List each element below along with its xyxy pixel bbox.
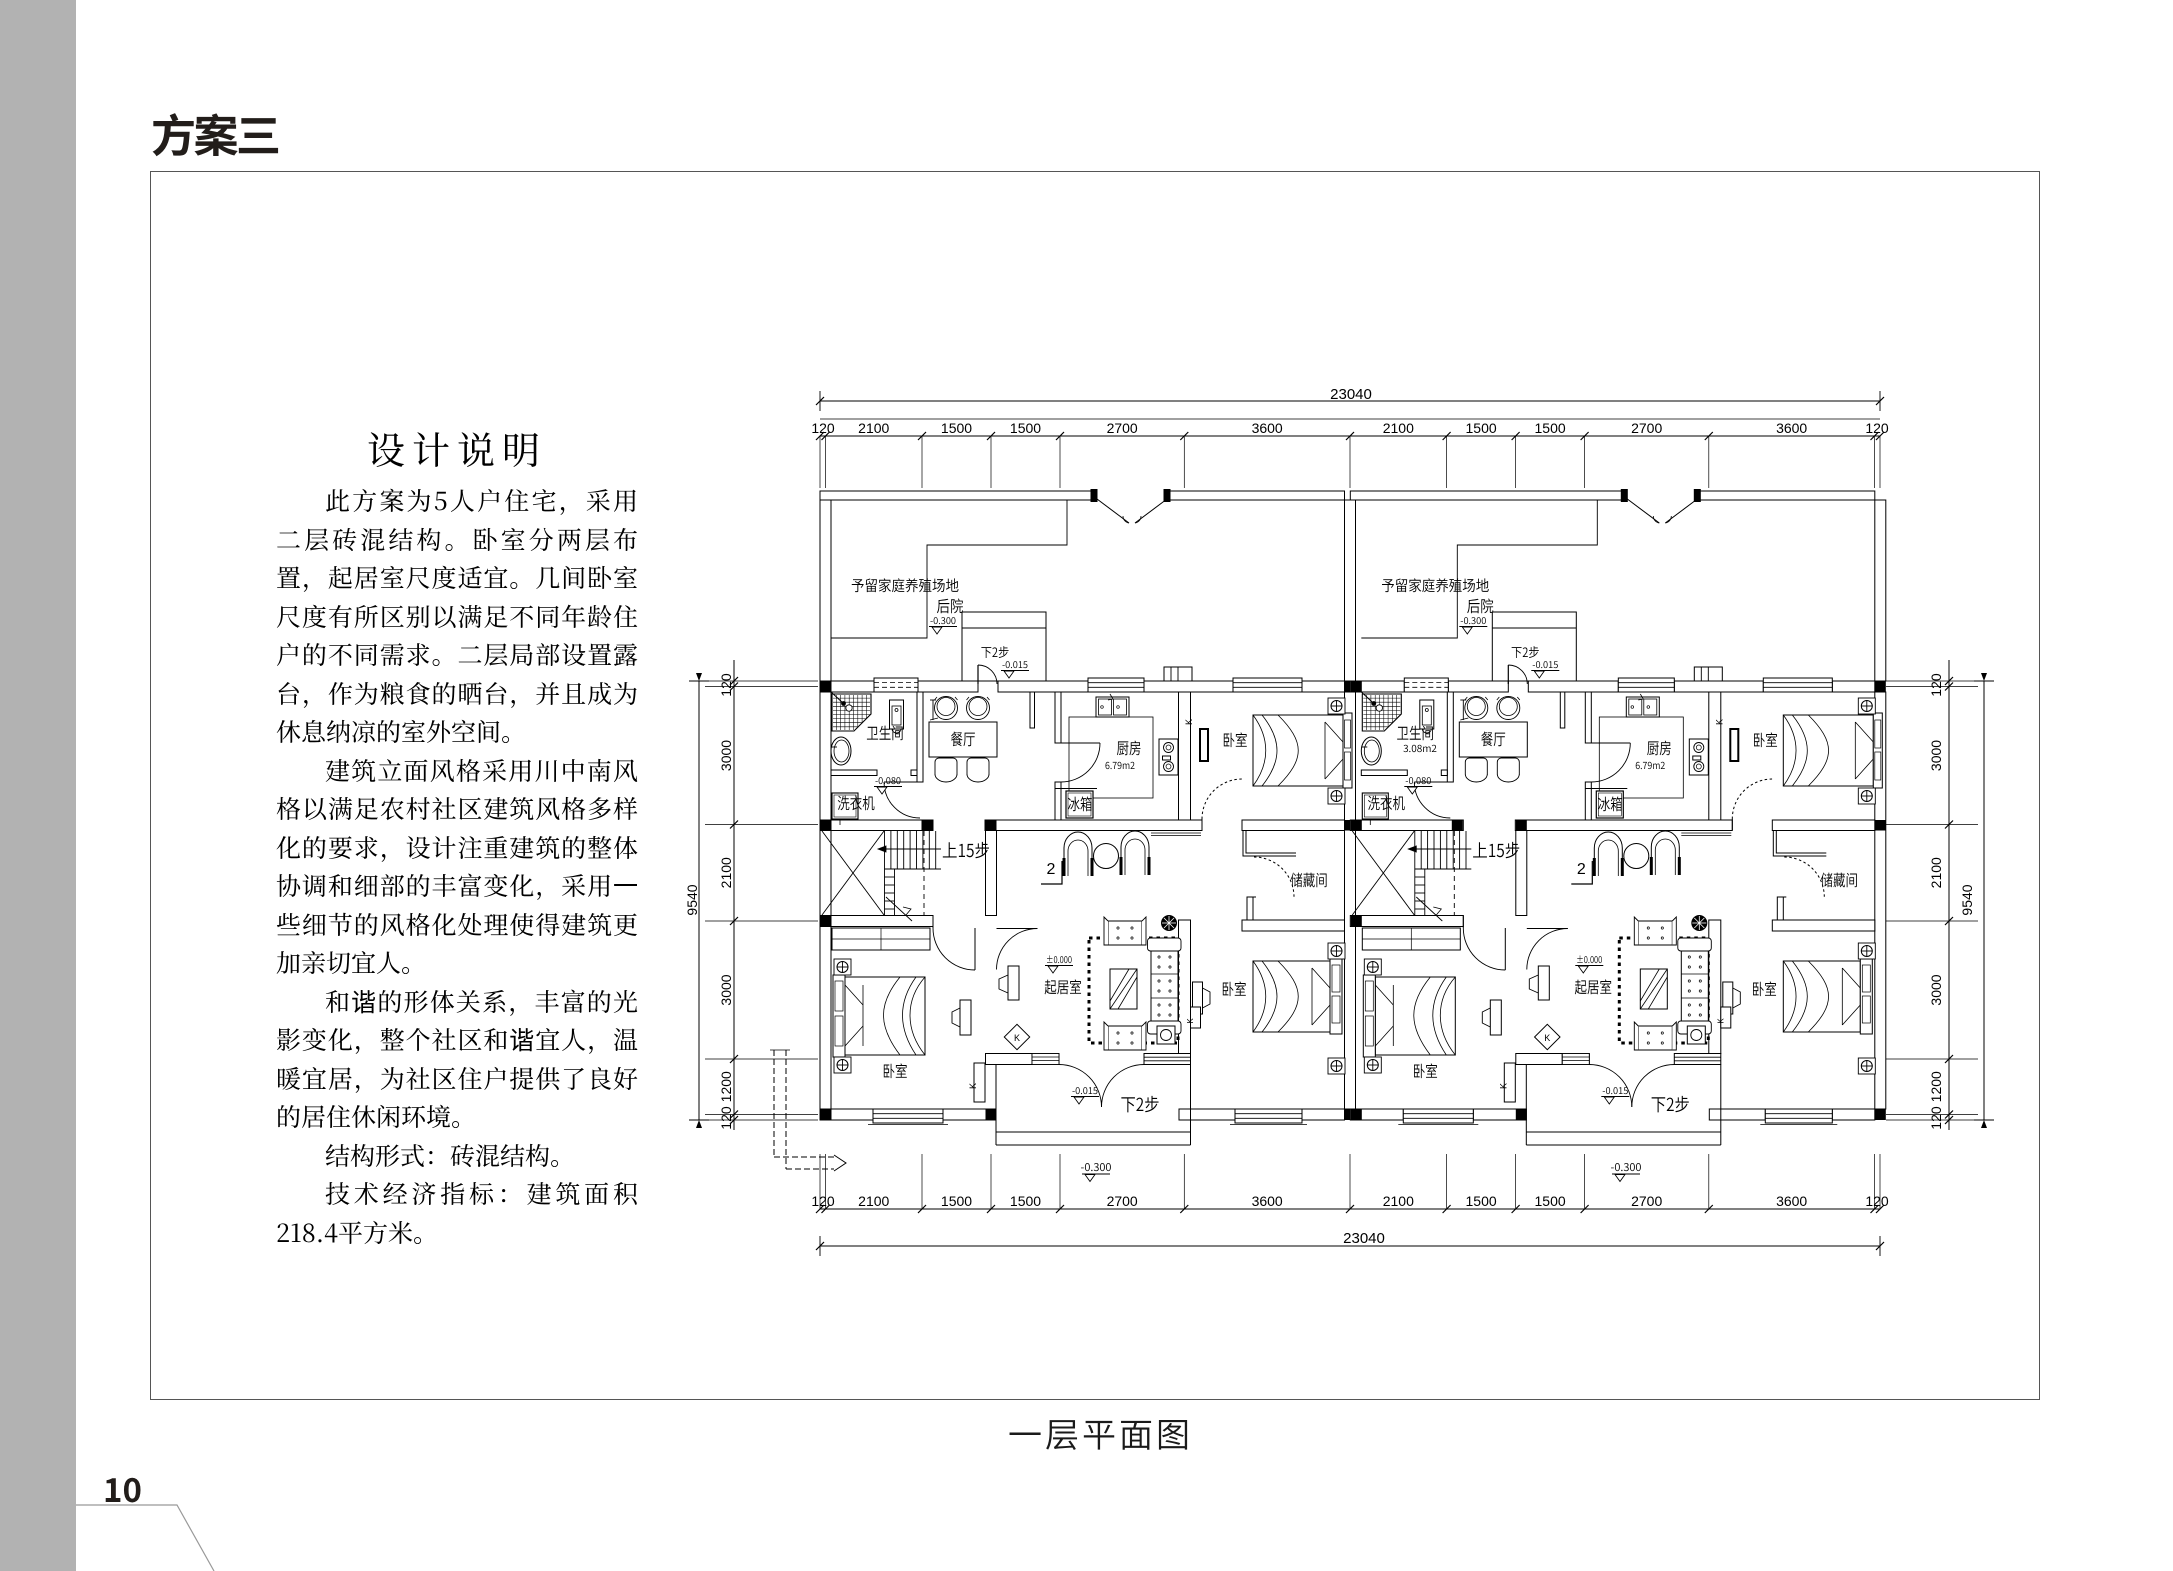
svg-text:冰箱: 冰箱 (1068, 791, 1093, 815)
svg-text:1500: 1500 (1535, 420, 1566, 436)
svg-text:卧室: 卧室 (1223, 727, 1248, 751)
svg-text:±0.000: ±0.000 (1046, 952, 1072, 966)
svg-text:120: 120 (1928, 1106, 1944, 1130)
svg-text:1500: 1500 (941, 1193, 972, 1209)
svg-text:3600: 3600 (1252, 1193, 1283, 1209)
svg-text:2700: 2700 (1107, 1193, 1138, 1209)
svg-text:2100: 2100 (1383, 420, 1414, 436)
svg-text:3000: 3000 (718, 974, 734, 1005)
svg-text:1500: 1500 (1466, 420, 1497, 436)
svg-text:1200: 1200 (1928, 1071, 1944, 1102)
svg-text:6.79m2: 6.79m2 (1105, 757, 1135, 772)
svg-text:3600: 3600 (1776, 1193, 1807, 1209)
svg-text:2700: 2700 (1631, 420, 1662, 436)
svg-text:起居室: 起居室 (1044, 974, 1082, 998)
svg-text:-0.300: -0.300 (930, 613, 956, 627)
svg-text:120: 120 (1865, 420, 1889, 436)
svg-text:120: 120 (718, 1106, 734, 1130)
svg-text:3000: 3000 (1928, 740, 1944, 771)
svg-text:1500: 1500 (1535, 1193, 1566, 1209)
svg-text:K: K (968, 1083, 978, 1089)
svg-text:120: 120 (811, 1193, 835, 1209)
svg-text:-0.300: -0.300 (1611, 1159, 1642, 1175)
svg-text:上15步: 上15步 (942, 837, 990, 863)
svg-text:1200: 1200 (718, 1071, 734, 1102)
svg-text:9540: 9540 (1959, 884, 1975, 915)
svg-text:120: 120 (1865, 1193, 1889, 1209)
svg-text:120: 120 (1928, 673, 1944, 697)
svg-text:3000: 3000 (718, 740, 734, 771)
svg-text:下2步: 下2步 (1121, 1091, 1160, 1117)
svg-text:2100: 2100 (718, 857, 734, 888)
svg-text:洗衣机: 洗衣机 (837, 790, 875, 814)
svg-text:2700: 2700 (1107, 420, 1138, 436)
svg-text:2100: 2100 (1383, 1193, 1414, 1209)
svg-text:卧室: 卧室 (883, 1058, 908, 1082)
svg-text:餐厅: 餐厅 (951, 726, 976, 750)
svg-text:1500: 1500 (941, 420, 972, 436)
svg-text:-0.015: -0.015 (1002, 657, 1028, 671)
svg-text:2100: 2100 (858, 420, 889, 436)
svg-text:K: K (1014, 1033, 1020, 1043)
svg-text:-0.080: -0.080 (875, 773, 901, 787)
svg-text:23040: 23040 (1343, 1230, 1385, 1247)
svg-text:2700: 2700 (1631, 1193, 1662, 1209)
svg-text:3600: 3600 (1252, 420, 1283, 436)
svg-text:储藏间: 储藏间 (1290, 867, 1328, 891)
svg-text:1500: 1500 (1010, 1193, 1041, 1209)
svg-text:1500: 1500 (1466, 1193, 1497, 1209)
svg-text:120: 120 (811, 420, 835, 436)
svg-text:-0.015: -0.015 (1072, 1083, 1098, 1097)
svg-text:3600: 3600 (1776, 420, 1807, 436)
svg-text:厨房: 厨房 (1117, 735, 1142, 759)
svg-text:-0.300: -0.300 (1081, 1159, 1112, 1175)
svg-text:卫生间: 卫生间 (866, 720, 904, 744)
svg-text:3000: 3000 (1928, 974, 1944, 1005)
svg-text:2: 2 (1047, 861, 1056, 878)
svg-text:2100: 2100 (858, 1193, 889, 1209)
svg-text:卧室: 卧室 (1222, 976, 1247, 1000)
svg-text:23040: 23040 (1330, 386, 1372, 403)
svg-text:2100: 2100 (1928, 857, 1944, 888)
svg-text:K: K (1184, 719, 1194, 725)
svg-text:120: 120 (718, 673, 734, 697)
svg-text:1500: 1500 (1010, 420, 1041, 436)
svg-text:K: K (1186, 1018, 1195, 1024)
svg-text:9540: 9540 (684, 884, 700, 915)
